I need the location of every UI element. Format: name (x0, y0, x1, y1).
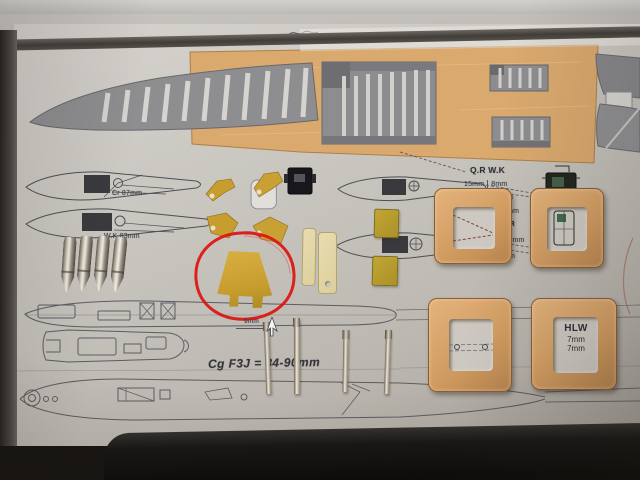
label-qr-wk-heading: Q.R W.K (470, 166, 505, 175)
frame-cutout-lines (449, 319, 493, 371)
frame-cutout-drawing (453, 207, 495, 249)
balsa-frame-part-4: HLW 7mm 7mm (531, 298, 617, 390)
label-hlw: HLW (557, 323, 595, 335)
balsa-frame-part-1 (434, 188, 512, 264)
balsa-frame-part-2 (530, 188, 604, 268)
label-hlw-block: HLW 7mm 7mm (557, 323, 595, 353)
frame-cutout (453, 207, 495, 249)
left-dark-edge (0, 30, 17, 466)
red-pen-arc-right (624, 238, 633, 314)
wall-background (0, 0, 640, 14)
wing-tip-panel-drawing (30, 63, 318, 130)
balsa-frame-part-3 (428, 298, 512, 392)
foreground-black-object (103, 423, 640, 480)
label-root-chord: Cr 87mm (112, 190, 142, 197)
pale-strip-part-1 (301, 228, 316, 286)
metal-rod-part-2 (294, 318, 300, 394)
frame-cutout: HLW 7mm 7mm (553, 317, 598, 373)
olive-block-part-2 (372, 256, 399, 287)
olive-block-part-1 (374, 209, 400, 239)
frame-cutout (547, 207, 587, 251)
mouse-cursor-icon[interactable] (266, 317, 280, 338)
frame-cutout-servo-drawing (547, 207, 587, 251)
label-hlw-v1: 7mm (557, 335, 595, 344)
dimension-line (236, 328, 266, 329)
right-rib-drawings (596, 54, 640, 152)
label-hlw-v2: 7mm (557, 344, 595, 353)
photo-of-model-plan: V.J.V. VALENTA MODEL www.valentamo Cr 87… (0, 0, 640, 480)
frame-cutout (449, 319, 493, 371)
fuselage-plate-drawing (43, 330, 189, 362)
label-canopy-width: 9mm (244, 319, 259, 326)
strip-hole (325, 281, 331, 287)
servo-drawing-black (284, 168, 316, 194)
pale-strip-part-2 (318, 232, 337, 294)
